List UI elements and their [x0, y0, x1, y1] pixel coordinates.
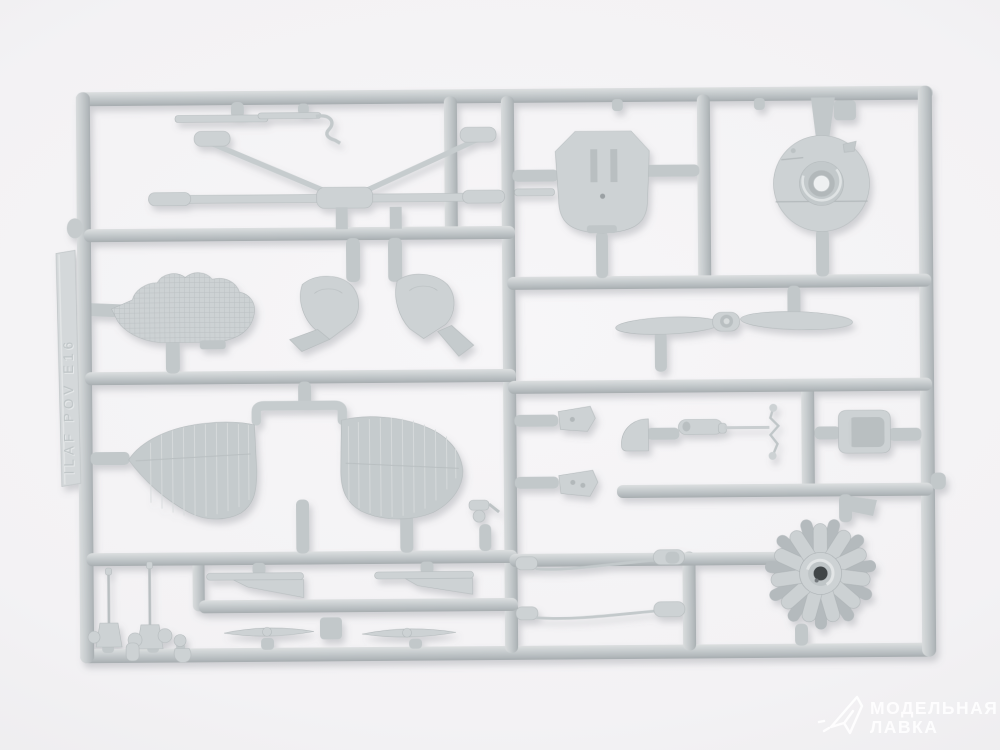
lower-wing-right: [340, 416, 463, 519]
radial-engine: [764, 518, 877, 630]
watermark-line1: МОДЕЛЬНАЯ: [870, 698, 998, 718]
hook-part: [316, 116, 340, 144]
plastic-sprue: ILAF POV E16 ILAF POV E16: [55, 86, 947, 664]
tank-cylinder-and-wire: [678, 404, 778, 461]
cabane-strut-assembly: [148, 127, 555, 231]
sprue-label-tab: ILAF POV E16 ILAF POV E16: [56, 250, 81, 486]
radiator-panel: [111, 272, 255, 350]
tail-fins: [207, 571, 474, 598]
sprue-photo-canvas: ILAF POV E16 ILAF POV E16 МОДЕЛЬНАЯ ЛАВК…: [0, 0, 1000, 750]
two-blade-propeller: [615, 309, 853, 336]
frame-side-stub: [931, 473, 946, 490]
small-ball-part: [174, 634, 186, 646]
watermark-line2: ЛАВКА: [870, 717, 938, 737]
pear-fitting: [174, 648, 191, 662]
cockpit-wedges: [558, 406, 598, 496]
cowling-side-right: [395, 274, 473, 357]
control-wire-zigzag: [770, 408, 778, 456]
shop-watermark: МОДЕЛЬНАЯ ЛАВКА: [819, 697, 998, 737]
embossed-text: ILAF POV E16: [61, 338, 77, 475]
cowling-side-left: [289, 276, 359, 352]
product-photo-model-sprue: ILAF POV E16 ILAF POV E16 МОДЕЛЬНАЯ ЛАВК…: [0, 0, 1000, 750]
small-pump-part: [469, 500, 499, 522]
pilot-seat: [838, 410, 890, 453]
cowling-front-disc: [773, 135, 870, 232]
watermark-logo-icon: [819, 697, 862, 733]
cockpit-bulkhead: [555, 131, 650, 234]
headrest-half-disc: [621, 419, 648, 451]
frame-side-nub: [67, 218, 83, 238]
lower-wing-left: [128, 422, 257, 520]
wing-center-section: [256, 405, 342, 421]
